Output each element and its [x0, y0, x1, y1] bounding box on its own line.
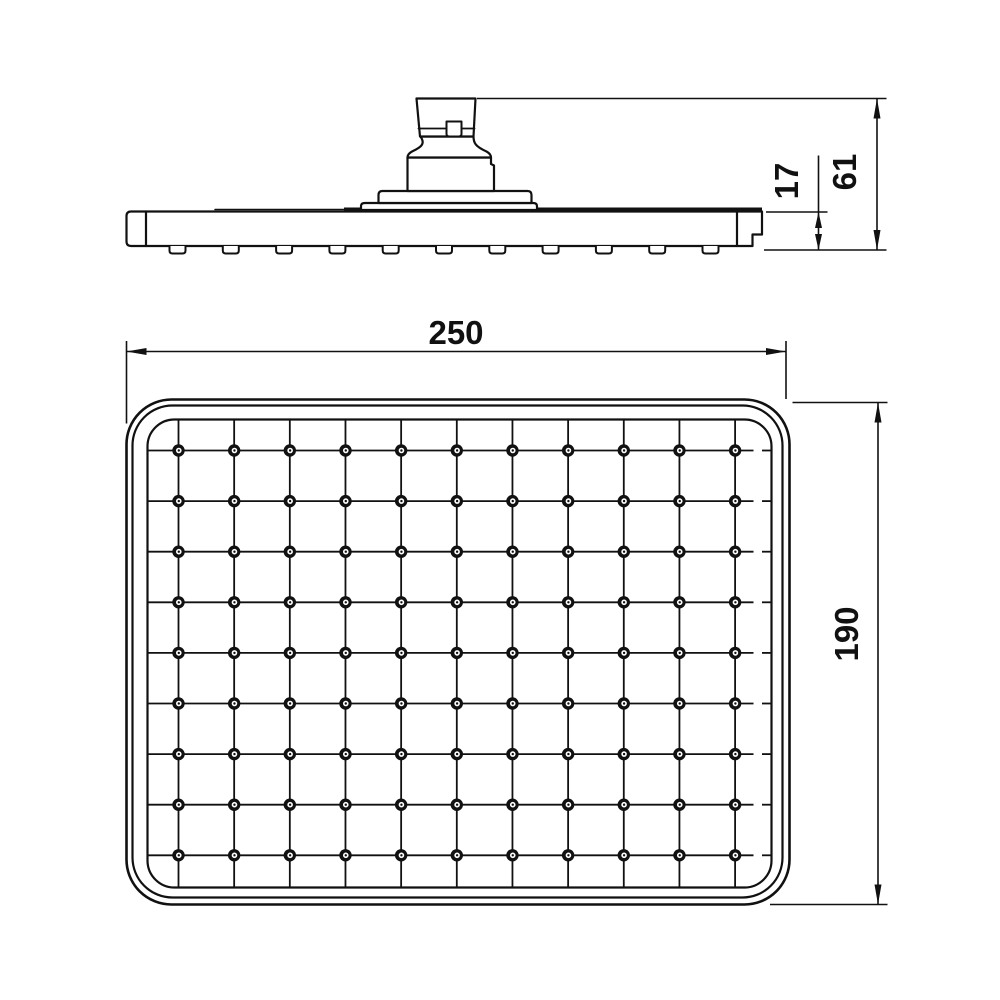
nozzle [451, 697, 463, 709]
side-nozzle-bump [383, 246, 399, 254]
nozzle [673, 495, 685, 507]
nozzle [451, 849, 463, 861]
nozzle [228, 697, 240, 709]
dim-face-height: 190 [770, 403, 888, 905]
nozzle [228, 748, 240, 760]
nozzle [562, 546, 574, 558]
nozzle [618, 546, 630, 558]
side-nozzle-bump [436, 246, 452, 254]
nozzle [228, 495, 240, 507]
side-view [127, 99, 763, 254]
nozzle [506, 647, 518, 659]
nozzle [729, 697, 741, 709]
nozzle [506, 444, 518, 456]
nozzle [284, 444, 296, 456]
nozzle [562, 596, 574, 608]
nozzle [172, 748, 184, 760]
arrowhead [874, 99, 881, 119]
face-view [127, 400, 790, 905]
nozzle [506, 697, 518, 709]
nozzle [172, 596, 184, 608]
nozzle [729, 546, 741, 558]
nozzle [172, 444, 184, 456]
nozzle [339, 697, 351, 709]
nozzle [284, 546, 296, 558]
mount-assembly [361, 99, 537, 211]
nozzle [172, 495, 184, 507]
nozzle [339, 799, 351, 811]
nozzle [562, 849, 574, 861]
nozzle [618, 697, 630, 709]
nozzle [729, 799, 741, 811]
nozzle [339, 748, 351, 760]
nozzle [395, 697, 407, 709]
nozzle [172, 647, 184, 659]
nozzle [562, 799, 574, 811]
nozzle [618, 799, 630, 811]
nozzle [618, 444, 630, 456]
nozzle [284, 799, 296, 811]
nozzle [506, 596, 518, 608]
dim-head-thickness: 17 [766, 156, 828, 251]
nozzle [506, 546, 518, 558]
nozzle [506, 799, 518, 811]
nozzle [339, 596, 351, 608]
nozzle [618, 495, 630, 507]
nozzle [618, 748, 630, 760]
arrowhead [815, 212, 822, 228]
arrowhead [815, 234, 822, 250]
nozzle [395, 546, 407, 558]
technical-drawing: 250 190 61 17 [0, 0, 1000, 1000]
nozzle [673, 546, 685, 558]
side-nozzle-bump [170, 246, 186, 254]
arrowhead [874, 230, 881, 250]
nozzle [673, 697, 685, 709]
nozzle [562, 495, 574, 507]
nozzle [395, 748, 407, 760]
nozzle [451, 495, 463, 507]
mount-cone [408, 137, 492, 158]
drawing-sheet: 250 190 61 17 [0, 0, 1000, 1000]
side-nozzle-bumps [170, 246, 719, 254]
nozzle [451, 596, 463, 608]
nozzle [729, 596, 741, 608]
side-nozzle-bump [543, 246, 559, 254]
nozzle [729, 647, 741, 659]
nozzle [451, 647, 463, 659]
nozzle [451, 799, 463, 811]
side-nozzle-bump [276, 246, 292, 254]
nozzle [562, 647, 574, 659]
nozzle [339, 444, 351, 456]
nozzle [506, 495, 518, 507]
nozzle [284, 647, 296, 659]
nozzle [506, 849, 518, 861]
nozzle [729, 748, 741, 760]
side-nozzle-bump [649, 246, 665, 254]
nozzle [395, 596, 407, 608]
arrowhead [875, 403, 882, 423]
dim-label-190: 190 [828, 606, 865, 661]
nozzle [228, 546, 240, 558]
nozzle [172, 697, 184, 709]
nozzle [562, 697, 574, 709]
nozzle [339, 546, 351, 558]
nozzle [451, 546, 463, 558]
arrowhead [875, 885, 882, 905]
nozzle [562, 748, 574, 760]
arrowhead [127, 348, 147, 355]
nozzle [673, 444, 685, 456]
nozzle [395, 444, 407, 456]
nozzle [673, 748, 685, 760]
nozzle [228, 799, 240, 811]
set-screw-notch [447, 122, 462, 137]
nozzle [395, 849, 407, 861]
arrowhead [766, 348, 786, 355]
nozzle [172, 849, 184, 861]
nozzle [618, 596, 630, 608]
nozzle [284, 849, 296, 861]
nozzle [673, 596, 685, 608]
nozzle [395, 647, 407, 659]
side-nozzle-bump [329, 246, 345, 254]
nozzle [339, 647, 351, 659]
side-nozzle-bump [703, 246, 719, 254]
nozzle [284, 697, 296, 709]
nozzle [506, 748, 518, 760]
nozzle [451, 444, 463, 456]
nozzle [395, 799, 407, 811]
nozzle [729, 444, 741, 456]
nozzle [673, 849, 685, 861]
dim-label-17: 17 [768, 163, 805, 200]
nozzle [729, 849, 741, 861]
nozzle [284, 495, 296, 507]
nozzle [172, 546, 184, 558]
nozzle [228, 444, 240, 456]
mount-flange [379, 191, 532, 203]
side-nozzle-bump [223, 246, 239, 254]
head-slab-outline [127, 212, 763, 247]
mount-cylinder [408, 158, 495, 192]
nozzle [562, 444, 574, 456]
nozzle [339, 849, 351, 861]
side-nozzle-bump [489, 246, 505, 254]
dim-label-250: 250 [428, 314, 483, 351]
dim-label-61: 61 [826, 154, 863, 191]
dim-face-width: 250 [127, 314, 787, 424]
nozzle [284, 748, 296, 760]
nozzle [228, 647, 240, 659]
nozzle [673, 799, 685, 811]
nozzle [729, 495, 741, 507]
nozzle [339, 495, 351, 507]
nozzle [172, 799, 184, 811]
nozzle [618, 849, 630, 861]
nozzle [284, 596, 296, 608]
nozzle [673, 647, 685, 659]
nozzle [618, 647, 630, 659]
nozzle [228, 596, 240, 608]
side-nozzle-bump [596, 246, 612, 254]
nozzle [451, 748, 463, 760]
nozzle [228, 849, 240, 861]
nozzle [395, 495, 407, 507]
